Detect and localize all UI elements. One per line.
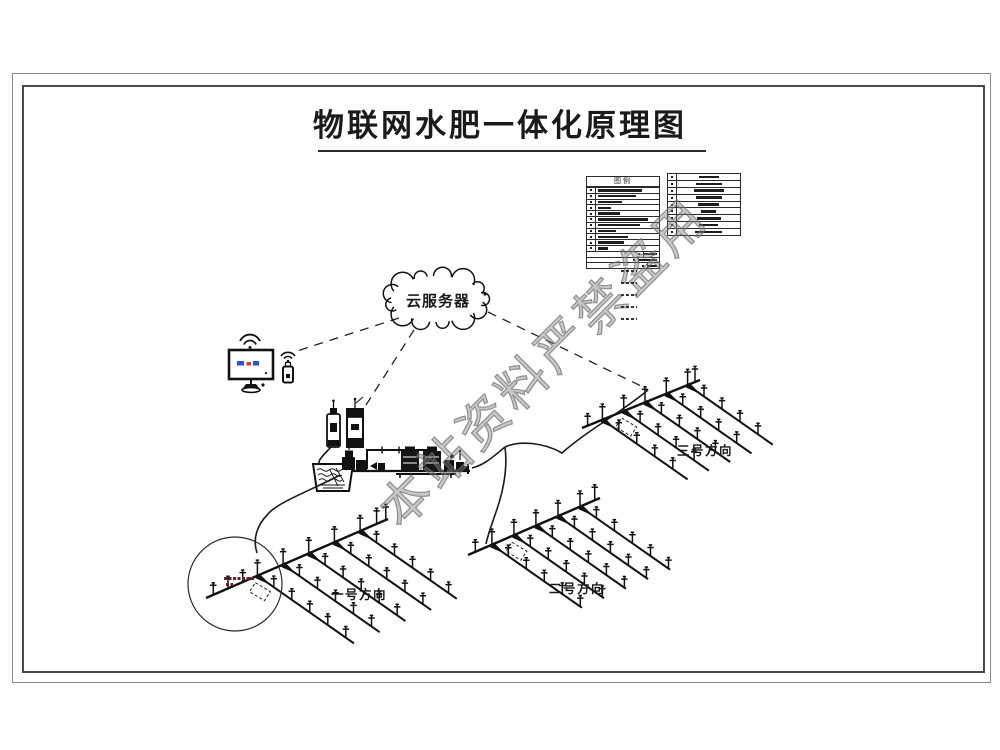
legend-dash-mark: [621, 306, 637, 308]
legend-row: [668, 194, 740, 201]
legend-row: [668, 221, 740, 228]
field-2-label: 二号方向: [549, 578, 605, 597]
fertilizer-tank-2: [347, 397, 363, 447]
legend-dash-mark: [621, 318, 637, 320]
detail-annotation-2: [226, 583, 233, 586]
legend-row: [587, 262, 659, 268]
legend-table-primary: 图例: [586, 176, 660, 269]
detail-annotation: [224, 577, 254, 580]
legend-table-secondary: [667, 173, 741, 236]
cloud-server-label: 云服务器: [401, 290, 475, 311]
legend-row: [668, 228, 740, 235]
wireless-link-lines: [297, 312, 641, 405]
valve-cluster: [444, 450, 469, 474]
legend-row: [668, 207, 740, 214]
legend-row: [668, 201, 740, 208]
pipeline-main: [472, 447, 505, 468]
pipeline-field2: [486, 447, 506, 544]
cloud-dot: [483, 292, 486, 295]
field-3-label: 三号方向: [677, 440, 733, 459]
pipeline-field3: [505, 390, 648, 453]
legend-row: [668, 187, 740, 194]
schematic-drawing: [0, 0, 1000, 750]
legend-row: [668, 180, 740, 187]
legend-dash-mark: [621, 270, 637, 272]
legend-header: 图例: [587, 177, 659, 187]
phone-icon: [281, 352, 295, 382]
fertilizer-tank-1: [327, 400, 340, 448]
monitor-icon: [229, 335, 273, 393]
drawing-sheet: 物联网水肥一体化原理图: [0, 0, 1000, 750]
legend-row: [668, 214, 740, 221]
field-3: [582, 366, 773, 479]
field-1-label: 一号方向: [331, 584, 387, 603]
legend-dash-mark: [621, 294, 637, 296]
legend-dash-mark: [621, 282, 637, 284]
field-1: [206, 504, 457, 643]
